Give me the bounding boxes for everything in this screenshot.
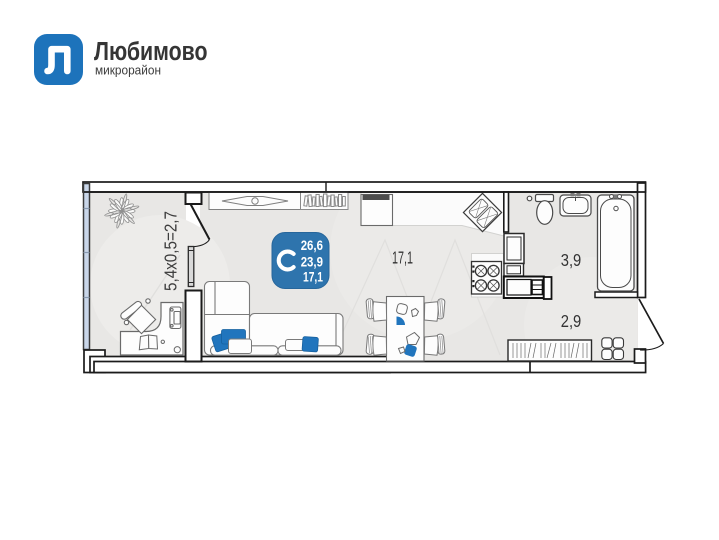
svg-text:17,1: 17,1 (392, 248, 413, 268)
svg-text:2,9: 2,9 (561, 311, 582, 331)
svg-text:3,9: 3,9 (561, 250, 582, 270)
svg-text:17,1: 17,1 (303, 269, 323, 285)
svg-text:23,9: 23,9 (301, 253, 323, 269)
svg-text:26,6: 26,6 (301, 237, 323, 253)
svg-text:микрорайон: микрорайон (95, 63, 161, 78)
svg-text:5,4x0,5=2,7: 5,4x0,5=2,7 (161, 211, 181, 291)
